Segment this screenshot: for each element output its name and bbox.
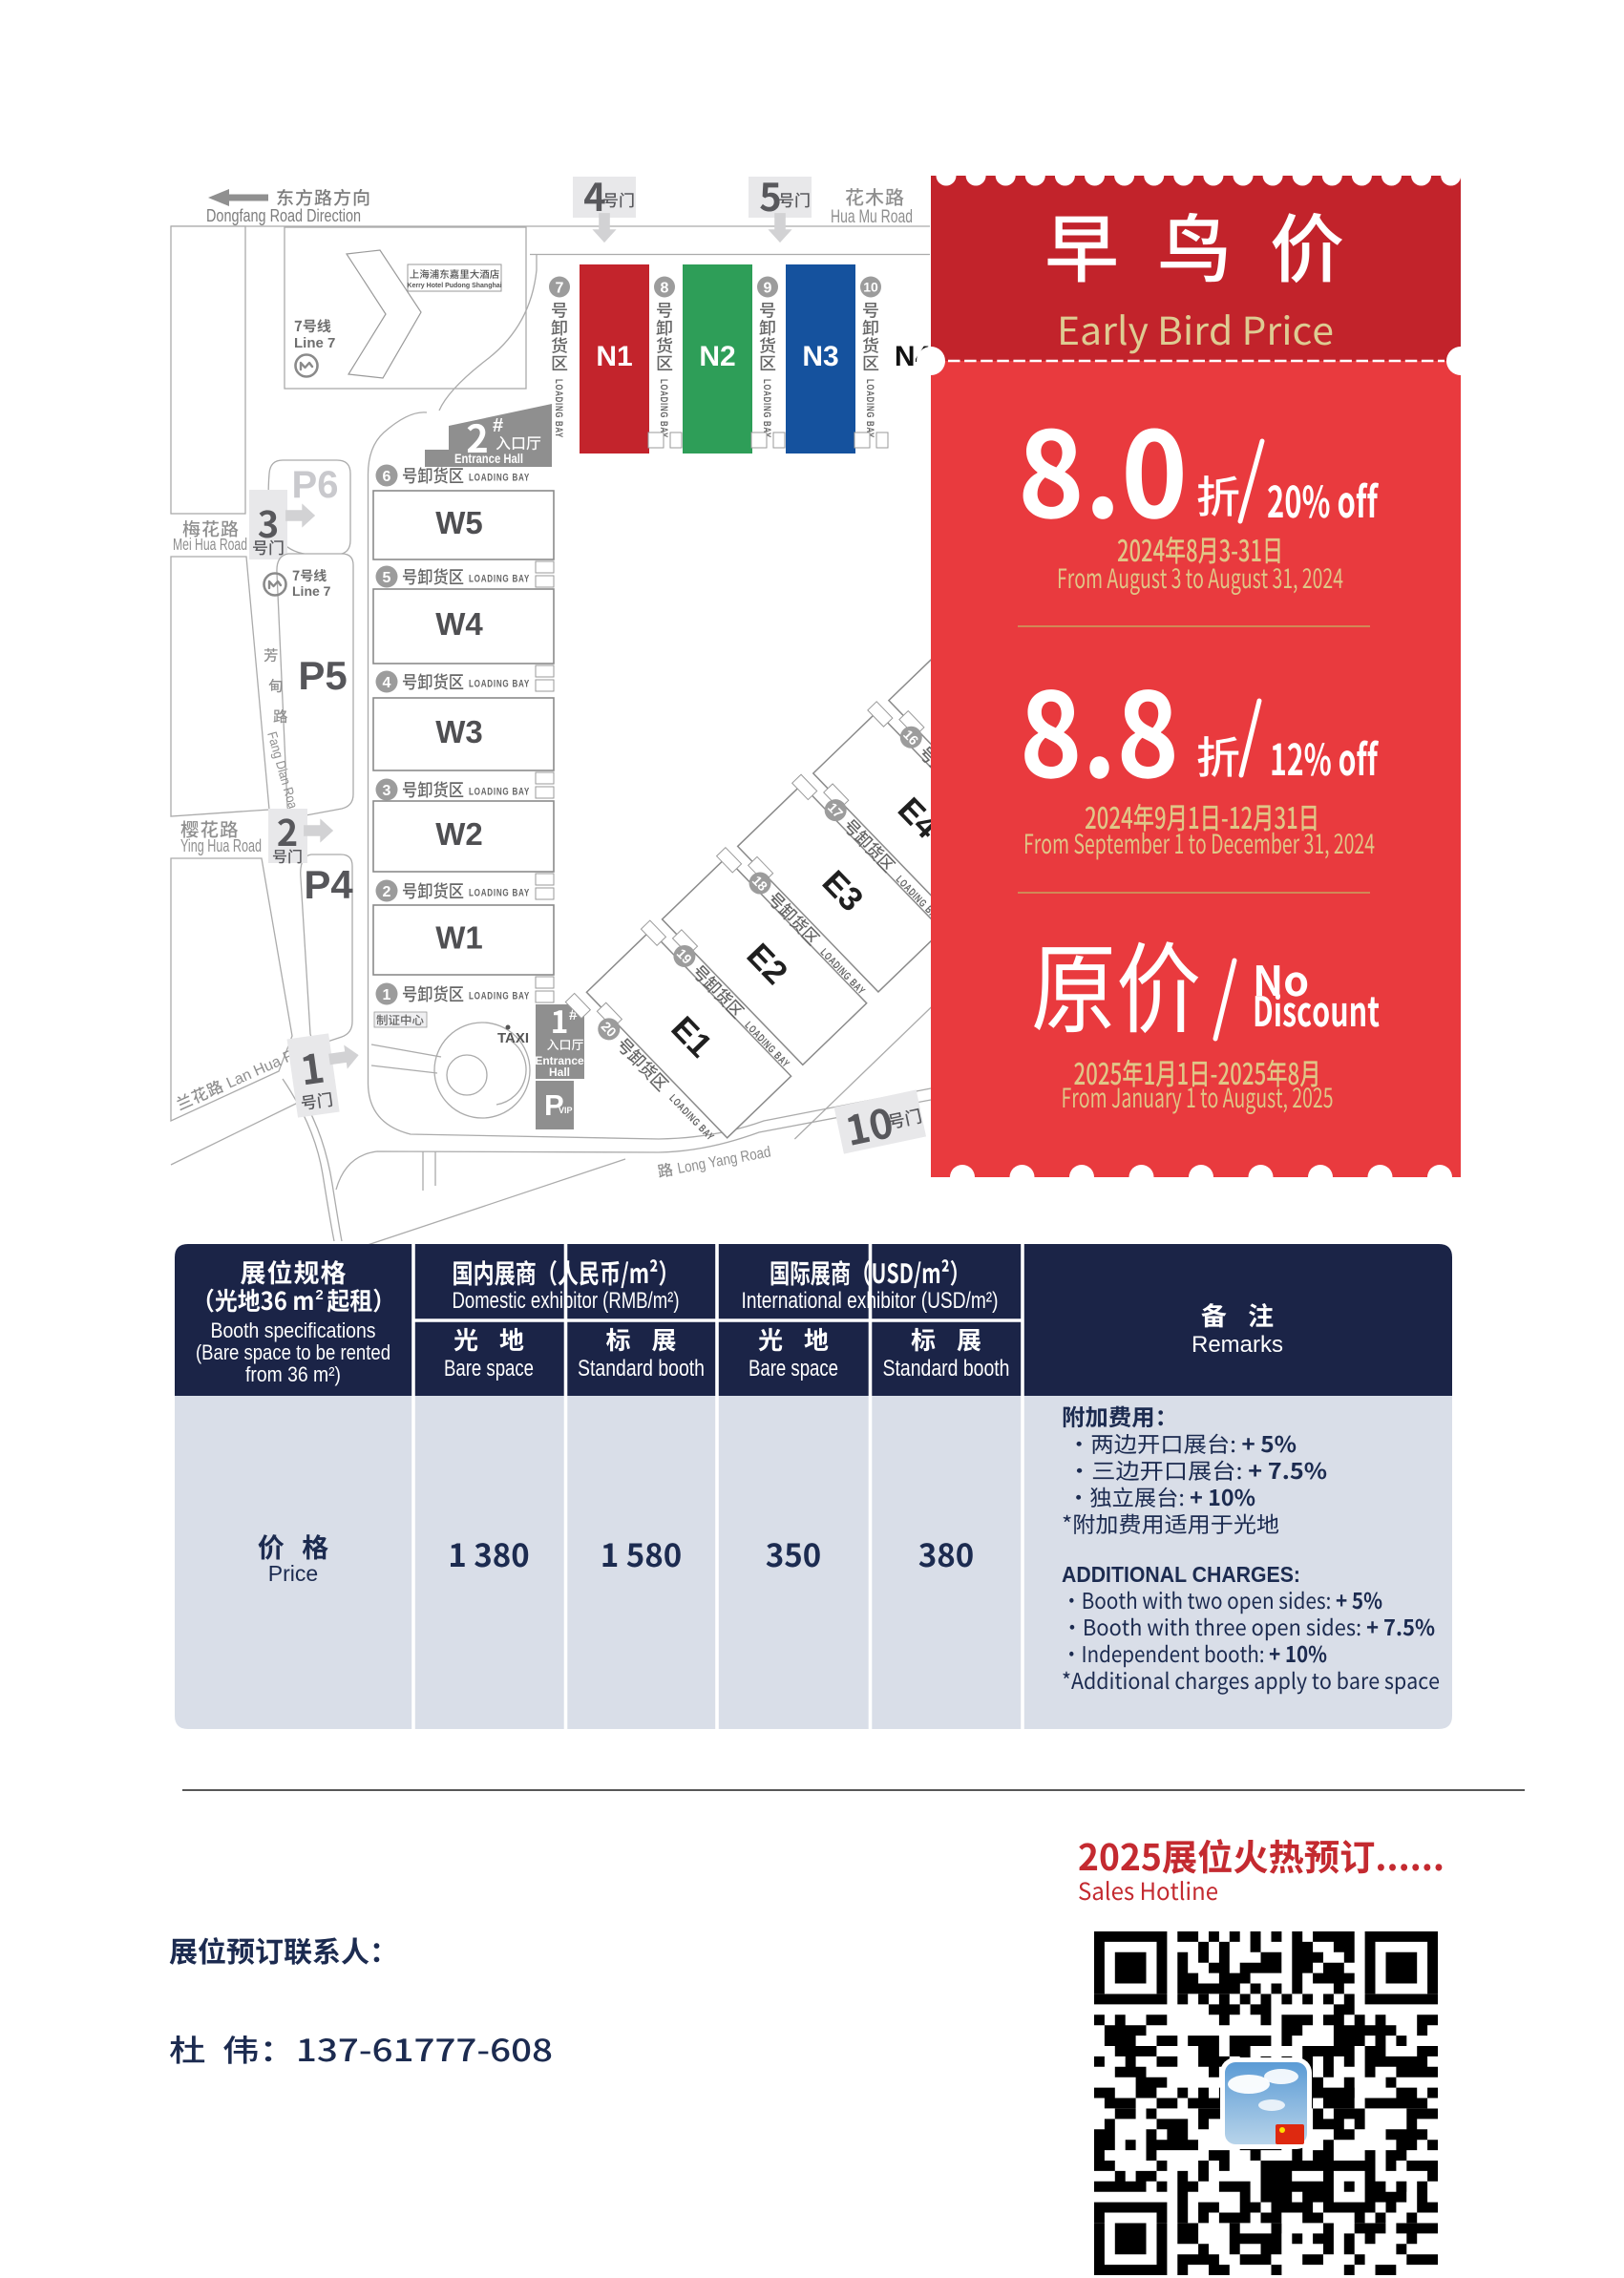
svg-text:Standard booth: Standard booth [883, 1356, 1010, 1382]
svg-text:Line 7: Line 7 [292, 583, 331, 599]
svg-text:(Bare space to be rented: (Bare space to be rented [196, 1340, 390, 1364]
svg-text:P4: P4 [304, 862, 353, 907]
svg-text:Price: Price [268, 1561, 318, 1586]
svg-text:LOADING BAY: LOADING BAY [469, 679, 530, 690]
svg-text:LOADING BAY: LOADING BAY [658, 379, 669, 438]
svg-text:10: 10 [863, 280, 878, 295]
svg-text:2: 2 [383, 884, 391, 900]
svg-text:Standard booth: Standard booth [578, 1356, 705, 1382]
svg-text:LOADING BAY: LOADING BAY [761, 379, 772, 438]
svg-text:LOADING BAY: LOADING BAY [469, 888, 530, 899]
svg-text:5: 5 [383, 570, 391, 586]
svg-text:2: 2 [315, 1287, 323, 1303]
svg-text:Domestic exhibitor (RMB/m²): Domestic exhibitor (RMB/m²) [453, 1288, 680, 1314]
svg-text:W4: W4 [435, 606, 483, 642]
svg-text:LOADING BAY: LOADING BAY [553, 379, 564, 438]
svg-text:ADDITIONAL CHARGES:: ADDITIONAL CHARGES: [1062, 1562, 1300, 1587]
svg-text:4: 4 [383, 675, 391, 691]
svg-text:N3: N3 [802, 341, 838, 372]
svg-text:Line 7: Line 7 [294, 335, 335, 351]
svg-text:9: 9 [764, 280, 772, 296]
svg-text:Hall: Hall [549, 1065, 570, 1079]
svg-text:W2: W2 [435, 816, 483, 852]
svg-text:Ying Hua Road: Ying Hua Road [180, 836, 262, 855]
svg-text:Kerry Hotel Pudong Shanghai: Kerry Hotel Pudong Shanghai [407, 283, 501, 289]
svg-text:#: # [493, 415, 503, 436]
svg-text:Bare space: Bare space [749, 1356, 838, 1382]
svg-text:3: 3 [383, 783, 391, 799]
svg-text:P5: P5 [298, 653, 347, 698]
svg-text:N1: N1 [596, 341, 632, 372]
svg-text:6: 6 [383, 469, 391, 485]
svg-text:Hua Mu Road: Hua Mu Road [831, 206, 913, 227]
svg-text:W1: W1 [435, 920, 483, 956]
svg-text:Remarks: Remarks [1192, 1332, 1283, 1358]
svg-text:LOADING BAY: LOADING BAY [469, 473, 530, 484]
svg-text:Booth specifications: Booth specifications [211, 1318, 376, 1342]
svg-text:Mei Hua Road: Mei Hua Road [173, 535, 247, 554]
svg-text:W5: W5 [435, 505, 483, 540]
svg-text:LOADING BAY: LOADING BAY [469, 574, 530, 585]
svg-text:Bare space: Bare space [444, 1356, 534, 1382]
svg-text:W3: W3 [435, 714, 483, 749]
svg-text:P6: P6 [292, 464, 339, 506]
svg-text:International exhibitor (USD/m: International exhibitor (USD/m²) [742, 1288, 999, 1314]
svg-text:1: 1 [383, 987, 391, 1003]
svg-text:TAXI: TAXI [497, 1030, 529, 1046]
svg-text:7: 7 [556, 280, 564, 296]
svg-text:N2: N2 [699, 341, 735, 372]
svg-text:LOADING BAY: LOADING BAY [864, 379, 875, 438]
svg-text:from 36 m²): from 36 m²) [245, 1362, 341, 1386]
svg-text:8: 8 [661, 280, 669, 296]
svg-text:Dongfang Road Direction: Dongfang Road Direction [206, 205, 361, 225]
svg-text:VIP: VIP [559, 1106, 573, 1115]
svg-text:Long Yang Road: Long Yang Road [676, 1144, 771, 1177]
svg-text:Entrance Hall: Entrance Hall [454, 452, 523, 466]
svg-text:LOADING BAY: LOADING BAY [469, 787, 530, 798]
svg-text:LOADING BAY: LOADING BAY [469, 991, 530, 1002]
